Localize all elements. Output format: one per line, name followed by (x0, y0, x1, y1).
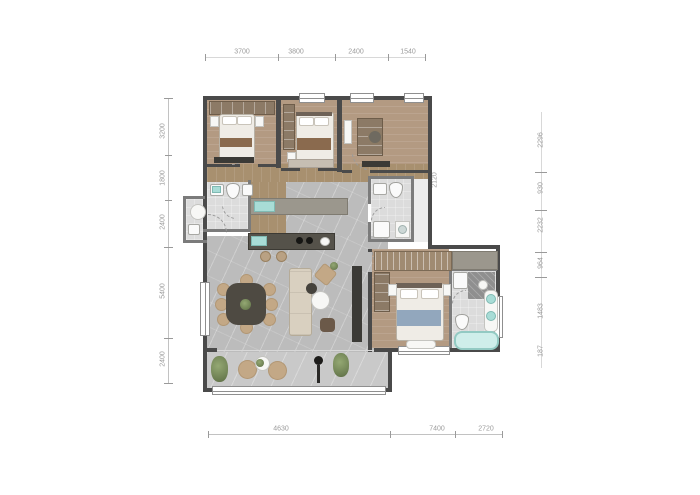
telescope-head (314, 356, 323, 365)
dim-tick (535, 252, 547, 253)
bedroom1-tv-console (214, 157, 254, 163)
dim-tick (205, 54, 206, 61)
bedroom2-rug (288, 159, 334, 168)
bedroom1-nightstand (255, 116, 264, 127)
bedroom2-pillow (314, 117, 329, 126)
master-headboard (396, 283, 442, 288)
dim-label-right-inner: 2120 (432, 172, 439, 188)
dim-label-right-2: 930 (538, 182, 545, 194)
dim-label-top-2: 3800 (288, 49, 304, 56)
bedroom2-pillow (299, 117, 314, 126)
wall-balcony-stub-right (374, 348, 392, 352)
bedroom1-pillow (237, 116, 252, 125)
bedroom1-nightstand (210, 116, 219, 127)
tv-wall (352, 266, 362, 342)
dim-line-left (168, 98, 169, 383)
balcony-plant-right (333, 353, 349, 377)
door-bathroom2 (371, 207, 385, 221)
master-wardrobe (374, 251, 452, 271)
dim-tick (335, 54, 336, 61)
wall-entry-bottom (183, 240, 207, 243)
entry-washer (190, 204, 206, 220)
master-nightstand (388, 284, 397, 296)
coffee-table-round (311, 291, 330, 310)
dim-line-bottom (208, 434, 503, 435)
dining-centerpiece-plant (240, 299, 251, 310)
window-study-right (404, 93, 424, 103)
telescope-stand (317, 365, 320, 383)
floorplan-canvas: 3700 3800 2400 1540 3200 1800 2400 5400 … (0, 0, 700, 495)
stove-burner (306, 237, 313, 244)
bedroom1-wardrobe (209, 101, 275, 115)
dim-tick (165, 155, 172, 156)
balcony-slider-line (217, 350, 374, 351)
dim-tick (388, 54, 389, 61)
dim-label-right-1: 2296 (538, 132, 545, 148)
dim-label-right-5: 1483 (538, 303, 545, 319)
dim-tick (535, 210, 547, 211)
kitchen-sink (254, 201, 275, 212)
dim-label-left-1: 3200 (160, 123, 167, 139)
dim-tick (164, 98, 173, 99)
bedroom2-headboard (296, 112, 332, 116)
wall-balcony-stub-left (203, 348, 217, 352)
master-bath-cabinet (453, 272, 468, 289)
dim-label-left-4: 5400 (160, 283, 167, 299)
wall-master-left-b (368, 272, 372, 352)
bedroom2-throw-blanket (297, 138, 331, 150)
dim-label-right-6: 187 (538, 345, 545, 357)
wall-master-bath-partition (449, 268, 452, 348)
bedroom2-cabinet (283, 104, 295, 150)
study-cabinet (362, 161, 390, 167)
washer-drum (398, 225, 407, 234)
sofa (289, 268, 312, 336)
bathroom2-sink (373, 183, 387, 195)
window-study (350, 93, 374, 103)
dim-tick (278, 54, 279, 61)
dim-tick (164, 338, 173, 339)
balcony-chair (268, 361, 287, 380)
dim-label-left-3: 2400 (160, 214, 167, 230)
dim-tick (390, 431, 391, 438)
wall-balcony-right (388, 348, 392, 392)
dim-label-top-3: 2400 (348, 49, 364, 56)
wall-bedroom2-hall-a (281, 168, 300, 171)
dim-label-bottom-1: 4630 (273, 426, 289, 433)
vanity-sink (486, 294, 496, 304)
master-bathtub (454, 331, 499, 350)
dim-tick (535, 172, 547, 173)
balcony-plant-left (211, 356, 228, 382)
dim-tick (164, 247, 173, 248)
study-shelf (344, 120, 352, 144)
master-throw-blanket (397, 310, 441, 326)
dim-label-bottom-3: 2720 (478, 426, 494, 433)
balcony-floor (207, 352, 388, 388)
dim-tick (165, 200, 172, 201)
bathroom1-cabinet (242, 184, 253, 196)
bar-stool (276, 251, 287, 262)
dim-tick (208, 431, 209, 438)
side-plant (330, 262, 338, 270)
dim-label-left-5: 2400 (160, 351, 167, 367)
dim-tick (535, 277, 547, 278)
dim-label-right-3: 2232 (538, 217, 545, 233)
shaft-area (414, 179, 428, 242)
master-bath-counter (452, 251, 498, 270)
bedroom1-throw-blanket (220, 138, 252, 147)
wall-bedroom2-hall-b (318, 168, 339, 171)
master-bench (406, 340, 436, 349)
window-living-left (200, 282, 210, 336)
door-master-bathroom (452, 290, 466, 304)
balcony-table-plant (256, 359, 264, 367)
wall-bedroom1-hall-b (258, 164, 278, 167)
wall-bathroom2-left-a (368, 176, 371, 204)
master-pillow (400, 289, 418, 299)
wall-study-hall-b (370, 170, 430, 173)
wall-entry-top (183, 196, 205, 199)
pouf (320, 318, 335, 332)
dim-tick (164, 383, 173, 384)
window-balcony-rail (212, 386, 386, 395)
dim-line-right (541, 112, 542, 368)
wall-bedroom1-bedroom2 (276, 96, 281, 168)
bathroom1-sink-basin (212, 186, 221, 193)
dim-label-top-4: 1540 (400, 49, 416, 56)
dim-tick (425, 54, 426, 61)
dining-chair (265, 298, 278, 311)
island-sink (251, 236, 267, 246)
dim-line-top (205, 57, 425, 58)
dim-label-top-1: 3700 (234, 49, 250, 56)
bedroom1-pillow (222, 116, 237, 125)
door-bathroom1 (222, 205, 236, 219)
study-chair (368, 130, 382, 144)
dim-label-left-2: 1800 (160, 170, 167, 186)
wall-bathroom2-right (411, 176, 414, 242)
master-nightstand (443, 284, 451, 296)
dim-label-right-4: 964 (538, 257, 545, 269)
shower-drain (478, 280, 488, 290)
dim-tick (502, 431, 503, 438)
wall-bathroom2-bottom (368, 239, 414, 242)
entry-cabinet (188, 224, 200, 235)
dim-label-bottom-2: 7400 (429, 426, 445, 433)
dim-tick (455, 431, 456, 438)
wall-entry-left (183, 196, 186, 243)
stove-burner (296, 237, 303, 244)
master-pillow (421, 289, 439, 299)
wall-bedroom2-study (337, 96, 342, 172)
bathroom2-shower (373, 221, 390, 238)
bar-stool (260, 251, 271, 262)
window-bedroom2 (299, 93, 325, 103)
wall-bathroom2-top (368, 176, 414, 179)
vanity-sink (486, 311, 496, 321)
wall-study-hall-a (342, 170, 352, 173)
island-dish (320, 237, 330, 246)
wall-master-top (428, 245, 500, 249)
